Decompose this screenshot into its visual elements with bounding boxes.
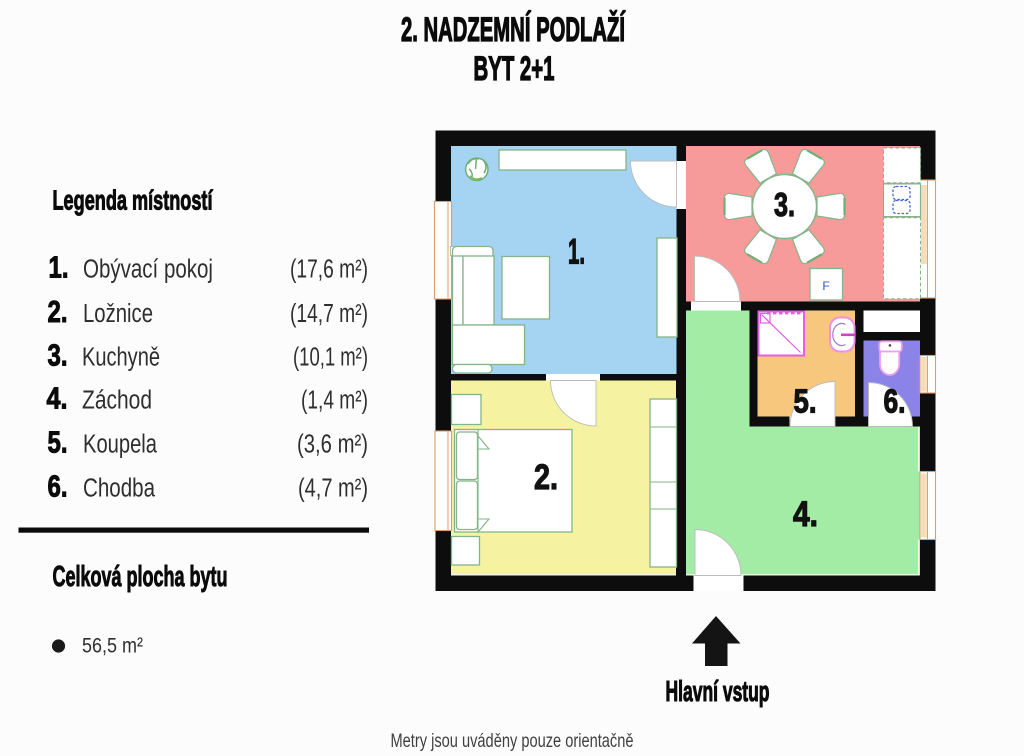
svg-text:Koupela: Koupela [83,431,158,459]
svg-text:Obývací pokoj: Obývací pokoj [83,256,213,284]
svg-text:3.: 3. [48,338,68,373]
svg-text:Záchod: Záchod [82,387,152,415]
svg-text:Ložnice: Ložnice [83,300,153,328]
svg-text:(3,6 m²): (3,6 m²) [297,431,368,459]
svg-text:56,5 m²: 56,5 m² [82,634,143,658]
svg-text:Kuchyně: Kuchyně [82,344,160,372]
svg-text:2.: 2. [534,458,558,497]
svg-text:(17,6 m²): (17,6 m²) [290,256,368,284]
svg-text:2.: 2. [48,294,68,329]
svg-text:F: F [822,279,829,293]
svg-text:BYT 2+1: BYT 2+1 [474,50,555,88]
svg-text:Chodba: Chodba [83,475,156,503]
svg-text:4.: 4. [47,381,68,416]
svg-text:5.: 5. [48,425,68,460]
svg-text:5.: 5. [794,383,817,420]
svg-text:3.: 3. [774,186,795,223]
svg-text:(1,4 m²): (1,4 m²) [301,387,368,415]
svg-text:4.: 4. [793,495,818,534]
svg-text:6.: 6. [48,469,68,504]
svg-text:(10,1 m²): (10,1 m²) [293,344,368,372]
svg-text:1.: 1. [49,250,69,285]
svg-text:(14,7 m²): (14,7 m²) [290,300,368,328]
svg-text:Metry jsou uváděny pouze orien: Metry jsou uváděny pouze orientačně [391,731,634,752]
svg-text:2. NADZEMNÍ PODLAŽÍ: 2. NADZEMNÍ PODLAŽÍ [401,11,626,49]
svg-text:6.: 6. [884,383,906,420]
svg-text:Hlavní vstup: Hlavní vstup [666,676,770,708]
svg-text:Legenda místností: Legenda místností [53,185,214,216]
svg-text:(4,7 m²): (4,7 m²) [298,475,368,503]
svg-text:1.: 1. [568,233,585,272]
svg-text:Celková plocha bytu: Celková plocha bytu [53,561,228,593]
